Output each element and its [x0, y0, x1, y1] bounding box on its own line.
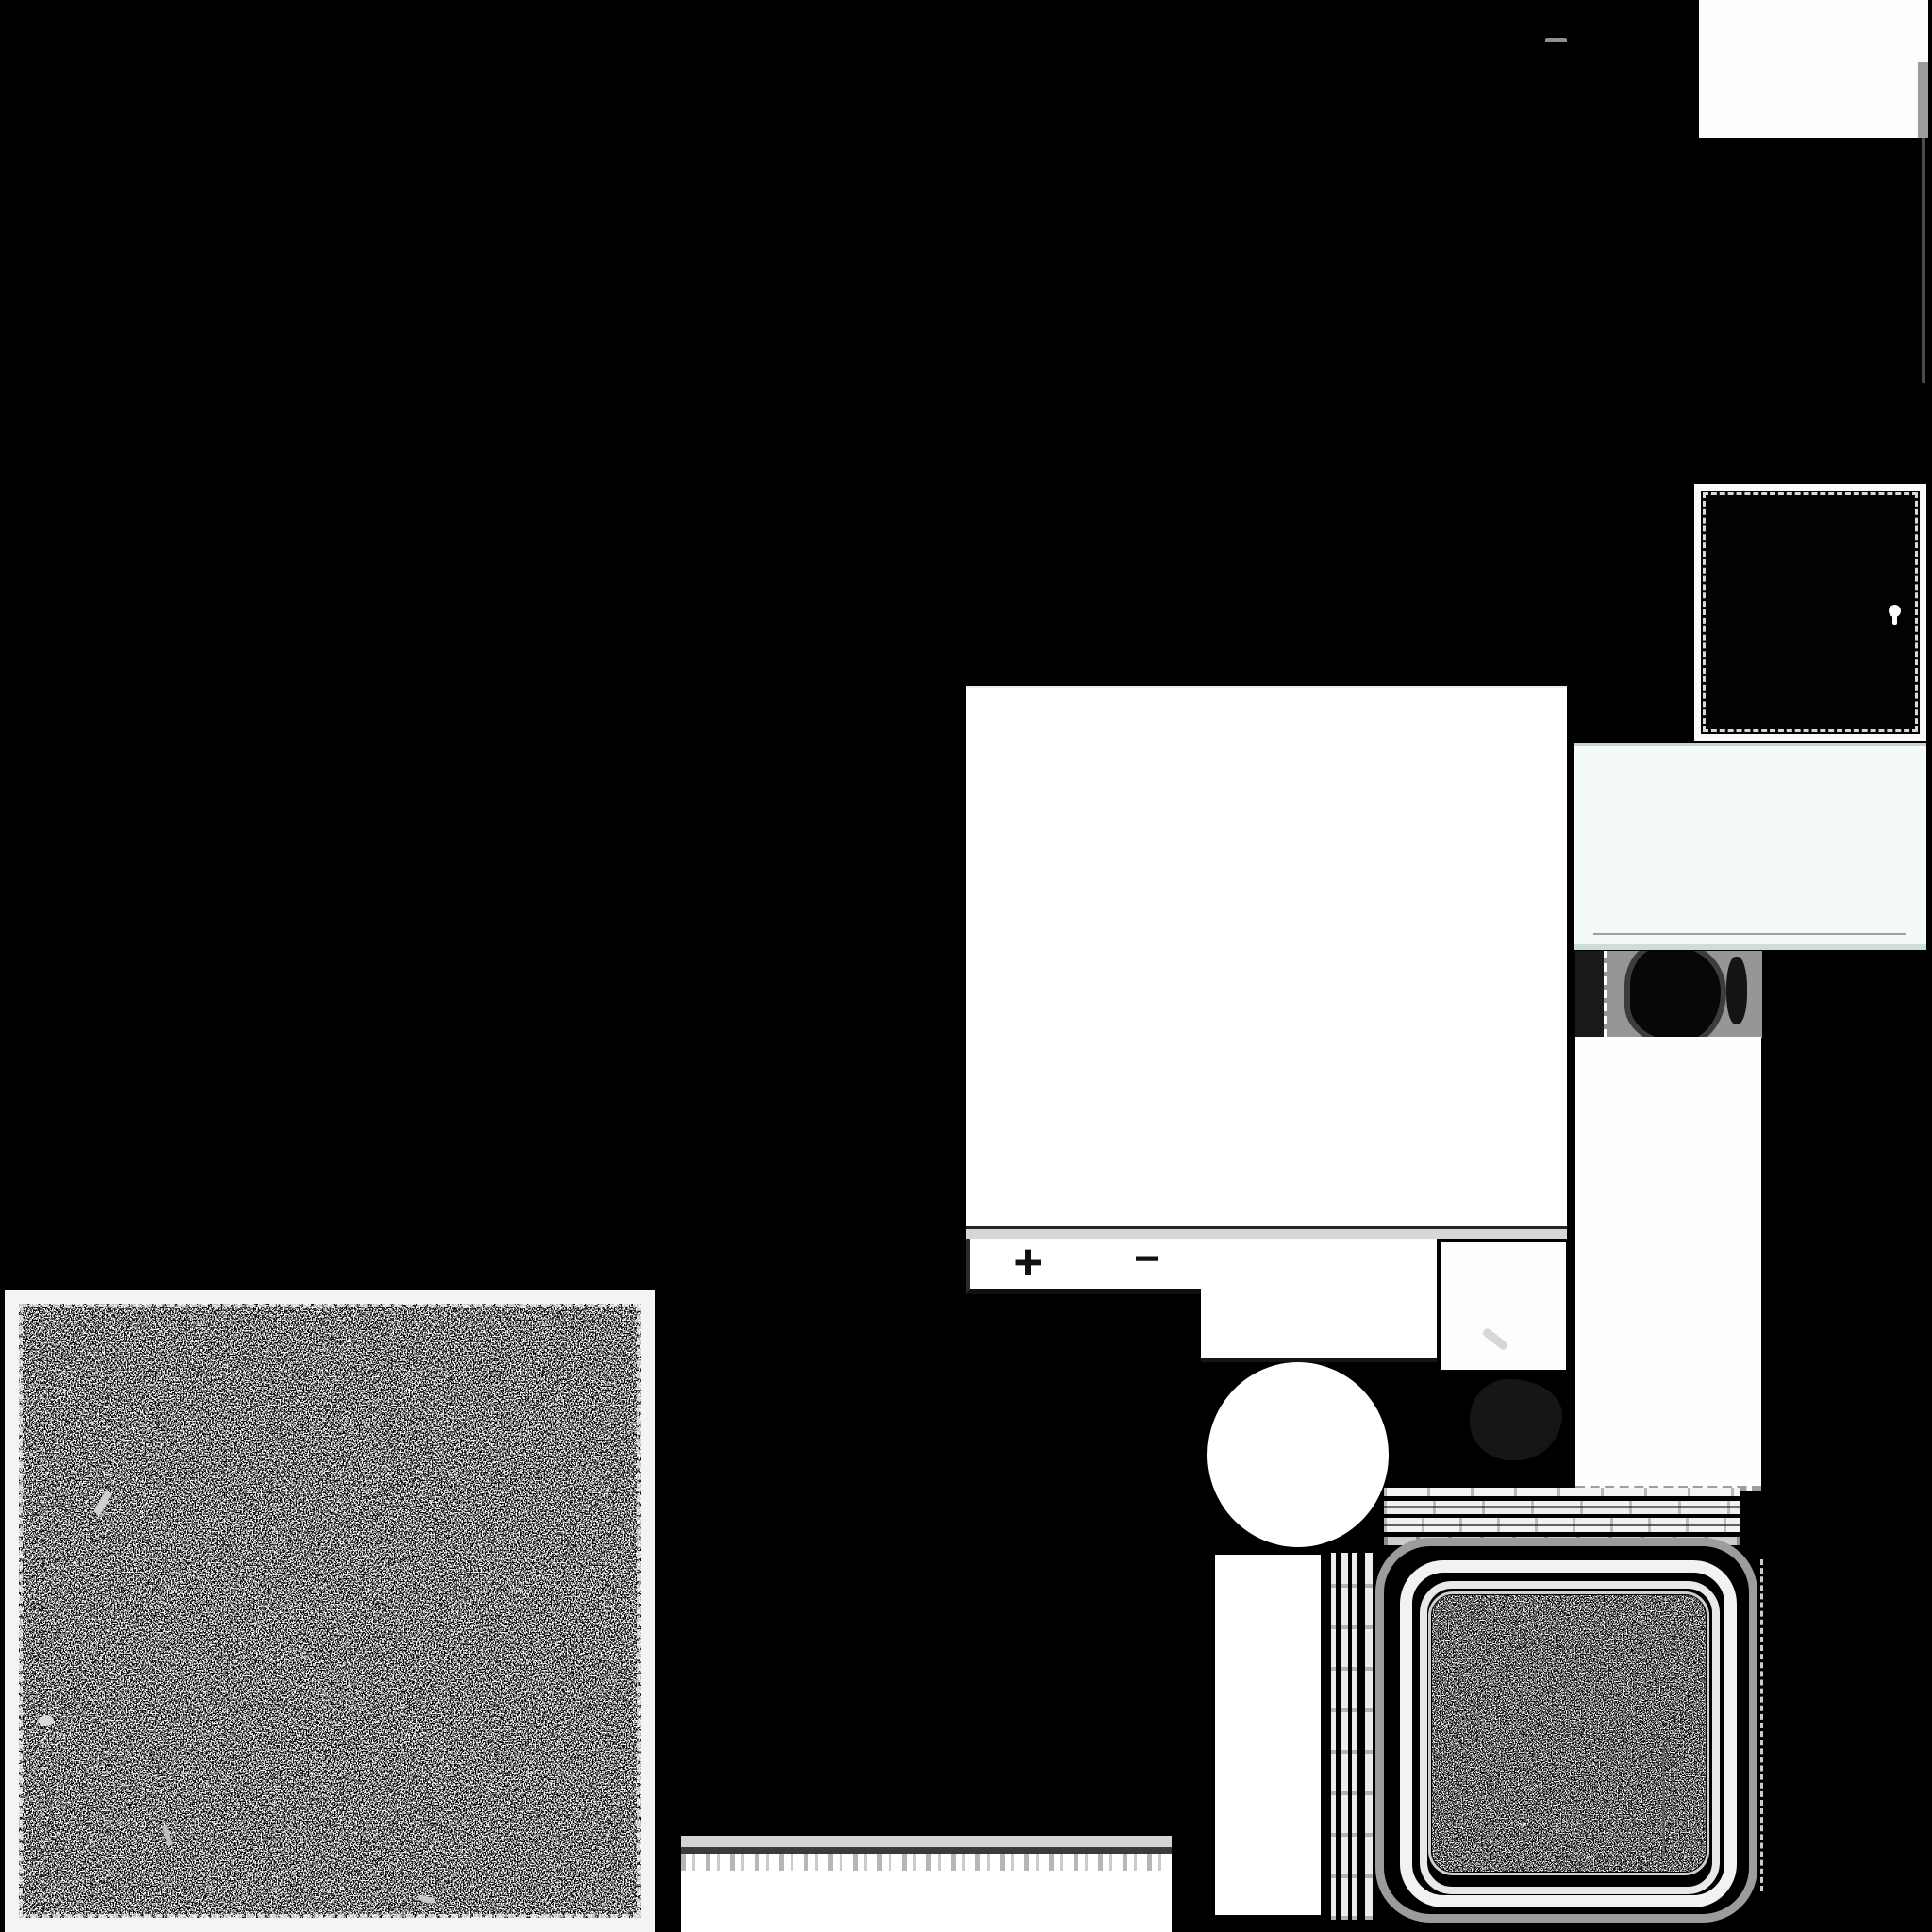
main-panel: [966, 686, 1567, 1226]
bottom-toolbar-speckle-band: [681, 1854, 1172, 1871]
footer-panel: [1201, 1239, 1437, 1362]
horizontal-stripe-2: [1384, 1501, 1740, 1514]
card-divider-line: [1593, 933, 1906, 935]
panel-edge-vertical-line: [1922, 138, 1925, 383]
horizontal-stripe-1: [1384, 1488, 1740, 1496]
vertical-stripe-4: [1365, 1553, 1373, 1920]
round-panel: [1207, 1362, 1389, 1547]
footer-side-panel: [1441, 1242, 1566, 1370]
bottom-toolbar: [681, 1836, 1172, 1932]
glitch-blob-small: [1726, 957, 1747, 1024]
vertical-stripe-2: [1341, 1553, 1348, 1920]
small-dash-mark: [1545, 38, 1567, 42]
frame-interior-scratch: [1662, 1746, 1665, 1859]
main-panel-divider: [966, 1226, 1567, 1239]
right-column-panel: [1575, 1037, 1761, 1491]
frame-edge-line: [1760, 1559, 1763, 1891]
photo-frame: [5, 1290, 655, 1932]
vertical-bar: [1215, 1555, 1321, 1915]
screenshot-canvas: + −: [0, 0, 1932, 1932]
scratch-mark-2: [39, 1715, 54, 1726]
zoom-out-button[interactable]: −: [1117, 1233, 1177, 1286]
photo-frame-noise: [19, 1304, 641, 1918]
glitch-dark-strip: [1575, 951, 1604, 1038]
zoom-toolbar: + −: [966, 1239, 1201, 1294]
vertical-stripe-3: [1352, 1553, 1357, 1920]
panel-edge-notch: [1918, 62, 1928, 138]
top-right-panel: [1699, 0, 1928, 138]
vertical-stripe-1: [1331, 1553, 1336, 1920]
scribble-mark: [1481, 1327, 1508, 1352]
zoom-in-button[interactable]: +: [1002, 1236, 1055, 1289]
outlined-black-square: [1694, 484, 1926, 741]
faint-blob: [1470, 1379, 1562, 1460]
frame-interior: [1432, 1595, 1706, 1872]
tinted-card: [1574, 743, 1926, 950]
glitch-scratch-line: [1604, 951, 1607, 1038]
glitch-blob: [1630, 951, 1721, 1038]
glitch-strip: [1575, 951, 1762, 1038]
horizontal-stripe-3: [1384, 1518, 1740, 1532]
keyhole-icon-stem: [1892, 614, 1897, 625]
